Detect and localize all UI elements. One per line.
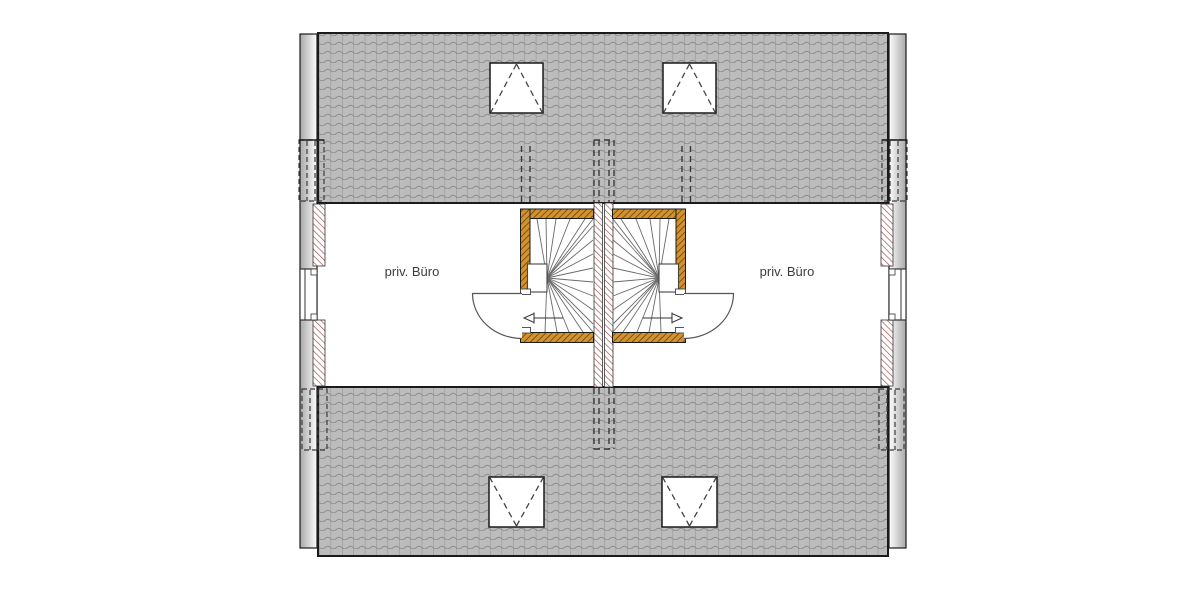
floor-plan-canvas: priv. Büro priv. Büro [0, 0, 1200, 600]
stair-landing-left [528, 264, 548, 292]
door-right [676, 289, 734, 339]
roof-top [318, 33, 888, 203]
skylight-top-left [490, 63, 543, 113]
party-wall [594, 203, 613, 387]
room-label-right: priv. Büro [760, 264, 815, 279]
floor-plan: priv. Büro priv. Büro [0, 0, 1200, 600]
stair-direction-arrow-right [643, 313, 682, 324]
door-swing-left [473, 294, 523, 339]
skylight-bottom-right [662, 477, 717, 527]
masonry-gable-walls [313, 204, 893, 386]
window-right [889, 269, 906, 320]
stair-direction-arrow-left [524, 313, 563, 324]
skylight-bottom-left [489, 477, 544, 527]
room-label-left: priv. Büro [385, 264, 440, 279]
door-swing-right [684, 294, 734, 339]
skylight-top-right [663, 63, 716, 113]
roof-bottom [318, 387, 888, 556]
stair-landing-right [659, 264, 679, 292]
door-left [473, 289, 531, 339]
window-left [300, 269, 317, 320]
